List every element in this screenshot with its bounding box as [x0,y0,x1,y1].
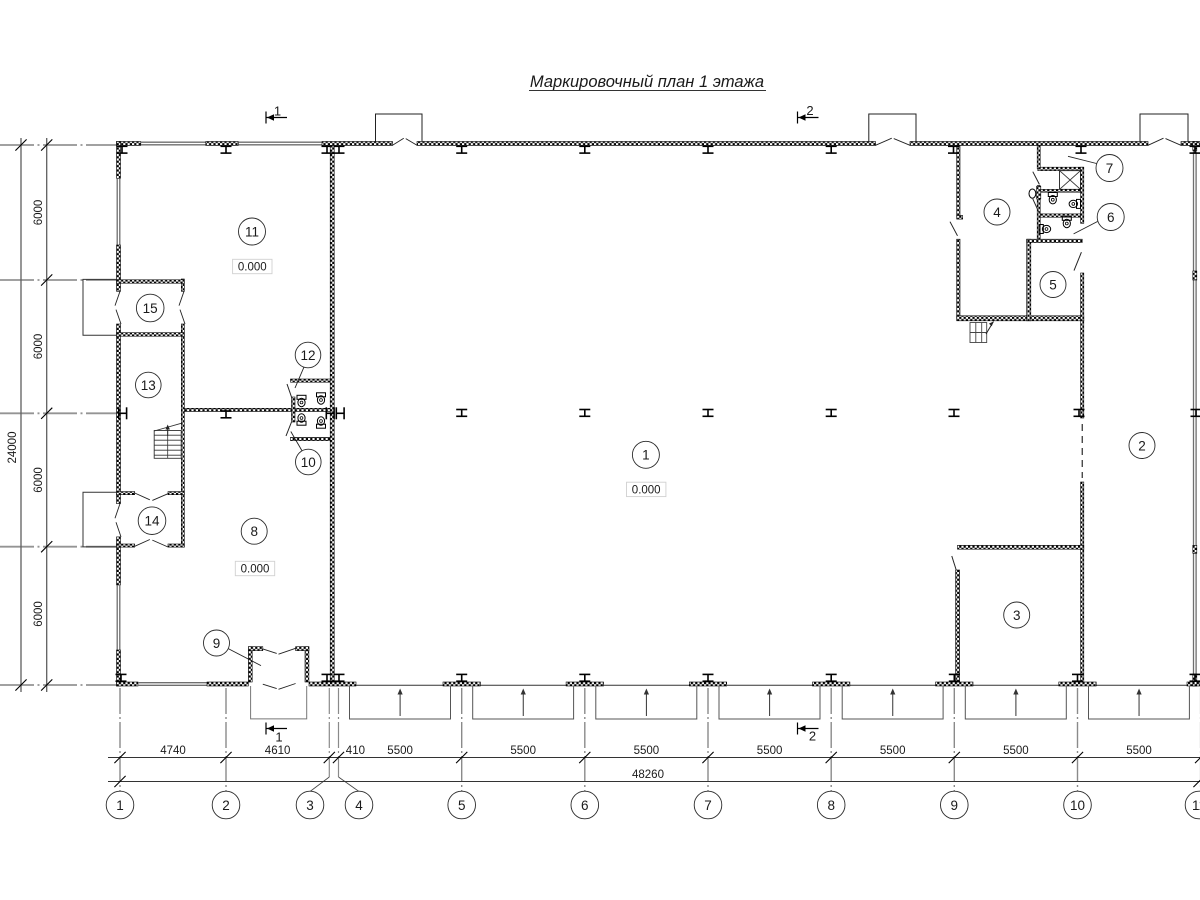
svg-text:1: 1 [642,448,650,463]
svg-text:12: 12 [300,348,315,363]
svg-text:4: 4 [993,205,1001,220]
svg-text:5500: 5500 [1126,745,1152,757]
svg-text:0.000: 0.000 [632,484,661,496]
svg-text:8: 8 [250,524,258,539]
svg-text:5500: 5500 [757,745,783,757]
svg-text:1: 1 [116,798,124,813]
svg-text:10: 10 [301,455,316,470]
svg-text:3: 3 [306,798,314,813]
svg-text:6000: 6000 [33,334,45,360]
svg-text:5: 5 [1049,277,1057,292]
svg-text:4610: 4610 [265,745,291,757]
svg-text:7: 7 [704,798,712,813]
svg-text:4: 4 [355,798,363,813]
svg-text:48260: 48260 [632,769,664,781]
svg-text:410: 410 [346,745,365,757]
svg-text:Маркировочный план 1 этажа: Маркировочный план 1 этажа [530,73,764,91]
svg-text:6: 6 [1107,210,1115,225]
svg-text:6000: 6000 [33,200,45,226]
svg-text:2: 2 [1138,438,1146,453]
svg-text:2: 2 [222,798,230,813]
svg-text:5500: 5500 [387,745,413,757]
svg-text:10: 10 [1070,798,1085,813]
svg-text:1: 1 [274,104,281,119]
svg-text:7: 7 [1106,161,1114,176]
svg-text:1: 1 [275,730,282,745]
svg-text:2: 2 [806,103,813,118]
svg-text:11: 11 [245,224,259,239]
svg-text:9: 9 [951,798,959,813]
svg-text:0.000: 0.000 [241,564,270,576]
svg-text:5500: 5500 [1003,745,1029,757]
svg-text:6000: 6000 [33,601,45,627]
svg-text:14: 14 [144,514,160,529]
svg-text:6: 6 [581,798,589,813]
svg-text:13: 13 [141,378,156,393]
svg-text:3: 3 [1013,608,1021,623]
svg-text:0.000: 0.000 [238,262,267,274]
svg-text:9: 9 [213,636,221,651]
svg-text:5: 5 [458,798,466,813]
svg-text:6000: 6000 [33,467,45,493]
svg-text:5500: 5500 [880,745,906,757]
svg-text:2: 2 [809,729,816,744]
svg-text:5500: 5500 [510,745,536,757]
svg-text:11: 11 [1192,798,1200,813]
svg-text:15: 15 [143,301,158,316]
svg-text:24000: 24000 [7,432,19,464]
svg-text:4740: 4740 [160,745,186,757]
svg-text:8: 8 [827,798,835,813]
svg-text:5500: 5500 [634,745,660,757]
